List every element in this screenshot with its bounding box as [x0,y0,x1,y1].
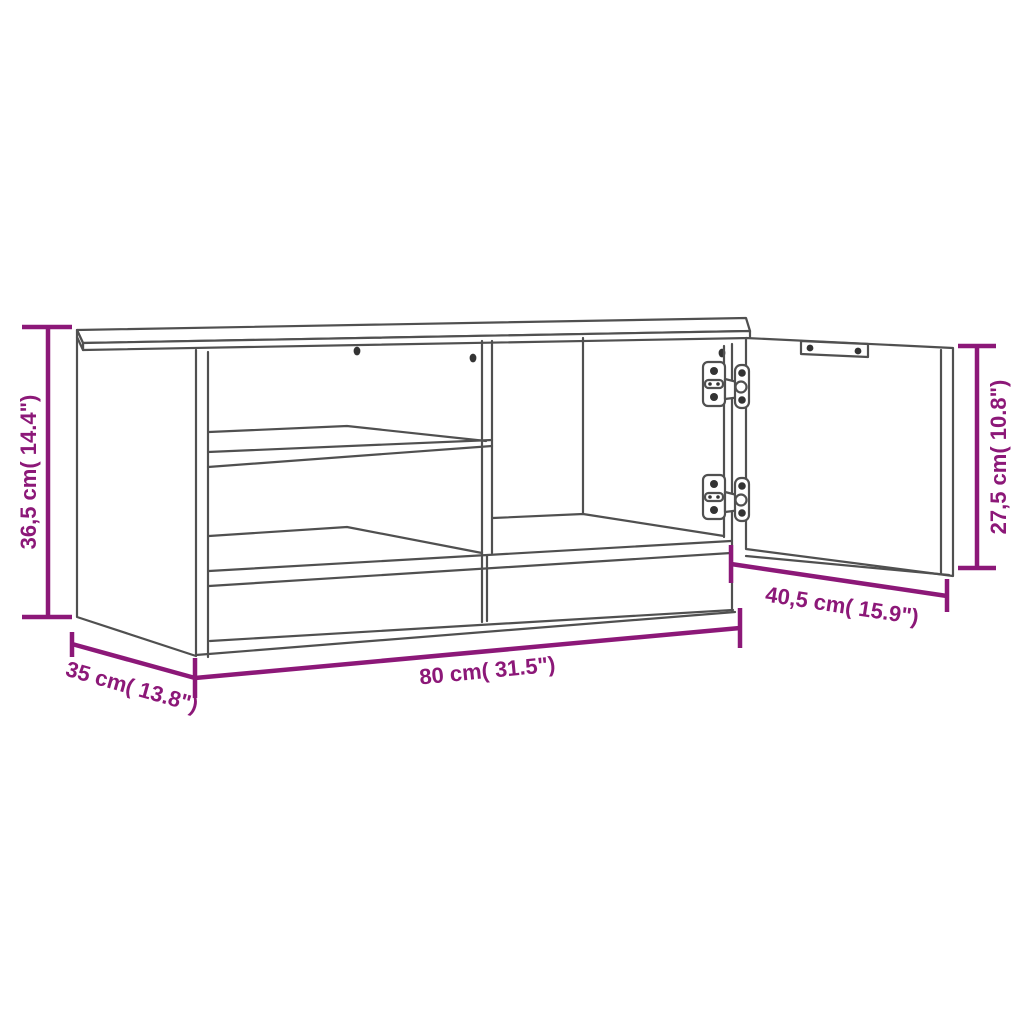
screw-icon [855,348,862,355]
door-panel [746,338,953,576]
screw-icon [807,345,814,352]
product-dimension-image: 36,5 cm( 14.4") 35 cm( 13.8") 80 cm( 31.… [0,0,1024,1024]
hinge-cup [736,382,747,393]
door-height-label: 27,5 cm( 10.8") [986,380,1011,535]
hinge-cup [736,495,747,506]
door-drawing [746,338,953,576]
hinge-top-icon [703,362,749,408]
height-label: 36,5 cm( 14.4") [16,395,41,550]
hinge-bottom-icon [703,475,749,521]
screw-icon [354,347,361,356]
hinge-slot [705,493,723,501]
hinge-slot [705,380,723,388]
dimension-diagram: 36,5 cm( 14.4") 35 cm( 13.8") 80 cm( 31.… [0,0,1024,1024]
screw-icon [470,354,477,363]
